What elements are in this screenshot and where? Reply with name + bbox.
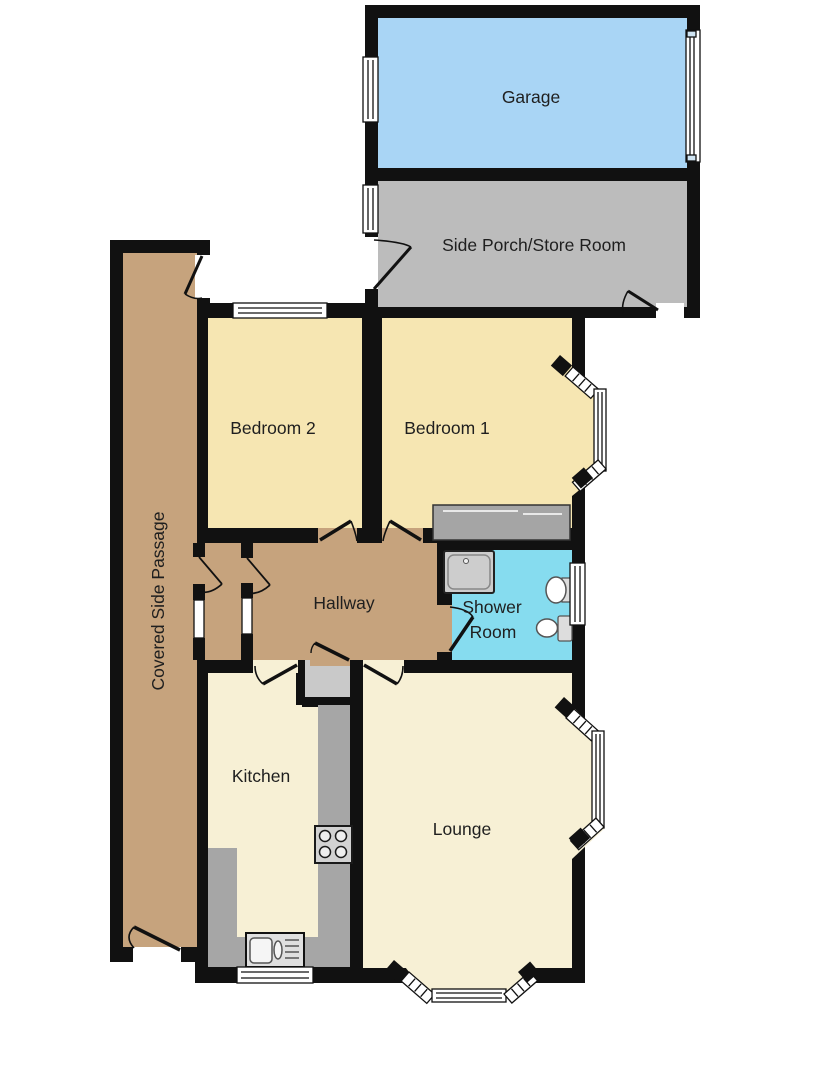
label-shower-line2: Room (470, 622, 517, 642)
label-hallway: Hallway (313, 593, 375, 613)
window-icon-shower-right (570, 563, 585, 625)
label-shower-line1: Shower (462, 597, 522, 617)
label-lounge: Lounge (433, 819, 491, 839)
window-icon-porch-left (363, 185, 378, 233)
floorplan-page: Garage Side Porch/Store Room Bedroom 2 B… (0, 0, 817, 1074)
window-icon-bedroom2-top (233, 303, 327, 318)
label-kitchen: Kitchen (232, 766, 290, 786)
door-gap-shower (437, 605, 452, 652)
label-bedroom2: Bedroom 2 (230, 418, 316, 438)
door-leaf-open (242, 598, 252, 634)
window-icon-bottom-bay (432, 989, 506, 1002)
garage-door-icon (686, 30, 700, 162)
hob-icon (315, 826, 352, 863)
window-icon-kitchen-bottom (237, 967, 313, 983)
door-gap-passage-top (195, 255, 210, 298)
floorplan-drawing: Garage Side Porch/Store Room Bedroom 2 B… (0, 0, 817, 1074)
label-covered-side-passage: Covered Side Passage (148, 512, 168, 691)
door-gap-porch-bottom (656, 303, 684, 318)
door-gap-passage-bottom (133, 947, 181, 962)
wash-basin-icon (546, 577, 573, 603)
window-icon-garage-left (363, 57, 378, 122)
label-garage: Garage (502, 87, 560, 107)
label-porch: Side Porch/Store Room (442, 235, 626, 255)
door-gap-porch-left (363, 237, 378, 289)
door-leaf-open (194, 600, 204, 638)
door-gap-cupboard (310, 660, 350, 666)
window-icon-lounge-bay (592, 731, 604, 828)
kitchen-sink-drainer-icon (246, 933, 304, 967)
window-icon-bed1-bay (594, 389, 606, 471)
shower-tray-icon (444, 551, 494, 593)
label-bedroom1: Bedroom 1 (404, 418, 490, 438)
